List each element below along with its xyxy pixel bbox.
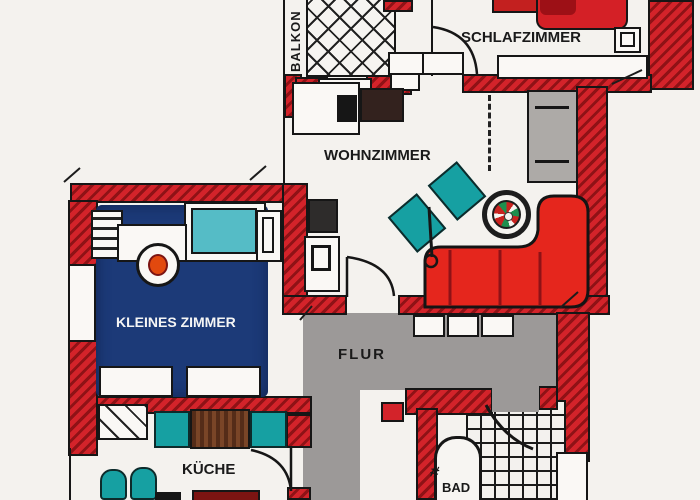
wall-pier	[381, 402, 404, 422]
wall-segment	[70, 183, 284, 203]
double-bed	[536, 0, 628, 30]
console	[304, 236, 340, 292]
nightstand-inner	[262, 217, 274, 253]
window	[388, 52, 464, 75]
washing-machine	[556, 452, 588, 500]
nightstand	[256, 210, 282, 262]
dresser	[99, 366, 173, 397]
desk-chair	[136, 243, 180, 287]
wall-segment	[538, 386, 558, 410]
room-label-balkon: BALKON	[288, 10, 303, 72]
counter	[292, 82, 360, 135]
kitchen-chair	[250, 411, 287, 448]
desk-chair-seat	[148, 254, 168, 276]
room-label-schlafzimmer: SCHLAFZIMMER	[461, 29, 581, 46]
counter-block	[337, 95, 357, 122]
nightstand-inner	[620, 32, 635, 47]
single-bed-mattress	[191, 208, 257, 254]
round-table-top	[492, 200, 521, 229]
built-in-closet	[481, 315, 514, 337]
nightstand	[614, 27, 641, 53]
wall-segment	[282, 295, 347, 315]
window-mullion	[422, 54, 424, 73]
single-bed	[184, 202, 266, 262]
armchair	[388, 193, 447, 253]
window	[98, 404, 148, 440]
room-label-bad: BAD	[442, 480, 470, 495]
wall-segment	[287, 487, 311, 500]
wall-segment	[286, 414, 312, 448]
window	[68, 264, 96, 342]
wall-segment	[68, 340, 98, 456]
bad-door-leaf	[492, 390, 539, 412]
wall-segment	[576, 86, 608, 312]
stool	[100, 469, 127, 500]
built-in-closet	[447, 315, 479, 337]
door-arc-kueche	[251, 448, 291, 491]
room-label-wohnzimmer: WOHNZIMMER	[324, 147, 431, 164]
room-label-kueche: KÜCHE	[182, 461, 235, 478]
stove	[192, 490, 260, 500]
wall-segment	[383, 0, 413, 12]
dining-table	[190, 409, 250, 449]
red-cabinet	[492, 0, 540, 13]
door-dashed-line	[488, 95, 491, 171]
kitchen-chair	[154, 411, 190, 448]
stool	[130, 467, 157, 500]
room-label-kleines-zimmer: KLEINES ZIMMER	[116, 314, 236, 330]
built-in-closet	[413, 315, 445, 337]
room-label-flur: FLUR	[338, 346, 386, 363]
wall-segment	[648, 0, 694, 90]
sideboard	[497, 55, 648, 79]
round-table-center	[504, 212, 513, 221]
armchair	[428, 161, 487, 221]
counter-edge	[155, 492, 181, 500]
floor-lamp-base	[425, 255, 437, 267]
wardrobe-line	[535, 160, 569, 163]
wardrobe	[527, 90, 578, 183]
round-table	[482, 190, 531, 239]
shelf	[360, 88, 404, 122]
wardrobe-line	[535, 106, 569, 109]
dresser	[186, 366, 261, 397]
console-inner	[311, 245, 331, 271]
kitchen-left-wall-line	[69, 448, 71, 500]
door-arc-wohnzimmer	[347, 257, 394, 297]
floor-plan: # BALKON SCHLAFZIMMER WOHNZIMMER KLEINES…	[0, 0, 700, 500]
tv-board	[308, 199, 338, 233]
pillow	[540, 0, 576, 15]
